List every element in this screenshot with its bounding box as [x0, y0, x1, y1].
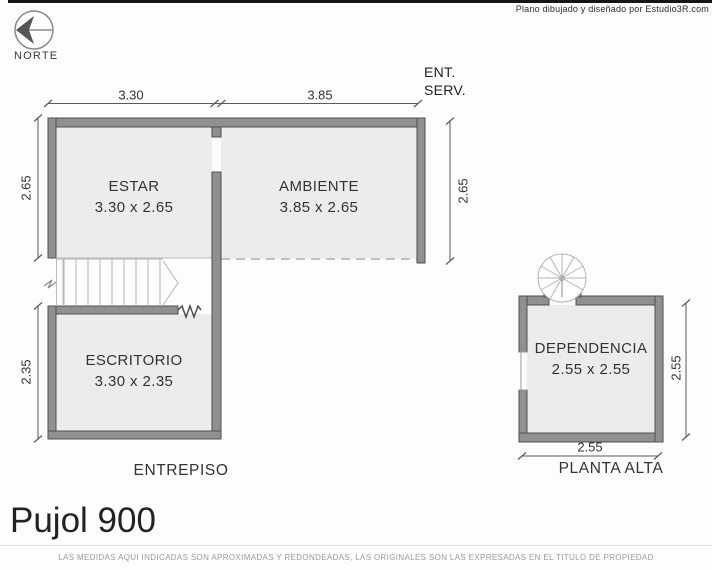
dim-width-estar: 3.30 [118, 88, 143, 103]
plan-linework [0, 0, 712, 570]
room-label-ambiente: AMBIENTE 3.85 x 2.65 [279, 176, 359, 218]
north-label: NORTE [14, 50, 58, 62]
sheet-title: Pujol 900 [10, 501, 156, 541]
floor-label-planta-alta: PLANTA ALTA [559, 460, 664, 478]
service-entrance-line2: SERV. [424, 82, 466, 100]
break-mark-icon [44, 280, 56, 288]
service-entrance-line1: ENT. [424, 64, 466, 82]
staircase [44, 258, 178, 306]
service-entrance-label: ENT. SERV. [424, 64, 466, 99]
spiral-staircase-icon [538, 254, 586, 302]
window-icon [519, 352, 527, 390]
room-name: ESCRITORIO [85, 350, 182, 371]
room-size: 3.30 x 2.35 [85, 371, 182, 392]
dim-width-dependencia: 2.55 [577, 440, 602, 455]
room-size: 3.30 x 2.65 [95, 197, 174, 218]
floor-plan-sheet: Plano dibujado y diseñado por Estudio3R.… [0, 0, 712, 570]
room-label-estar: ESTAR 3.30 x 2.65 [95, 176, 174, 218]
footer-divider [0, 545, 712, 546]
footer-disclaimer: LAS MEDIDAS AQUI INDICADAS SON APROXIMAD… [0, 553, 712, 562]
dim-height-estar: 2.65 [19, 175, 34, 200]
dim-width-ambiente: 3.85 [307, 88, 332, 103]
room-size: 3.85 x 2.65 [279, 197, 359, 218]
room-label-escritorio: ESCRITORIO 3.30 x 2.35 [85, 350, 182, 392]
room-name: DEPENDENCIA [535, 338, 648, 359]
room-label-dependencia: DEPENDENCIA 2.55 x 2.55 [535, 338, 648, 380]
room-name: ESTAR [95, 176, 174, 197]
north-arrow-icon [15, 11, 53, 49]
dim-height-dependencia: 2.55 [669, 355, 684, 380]
room-name: AMBIENTE [279, 176, 359, 197]
floor-label-entrepiso: ENTREPISO [134, 462, 229, 480]
dim-height-escritorio: 2.35 [19, 359, 34, 384]
dim-height-ambiente: 2.65 [456, 178, 471, 203]
room-size: 2.55 x 2.55 [535, 359, 648, 380]
